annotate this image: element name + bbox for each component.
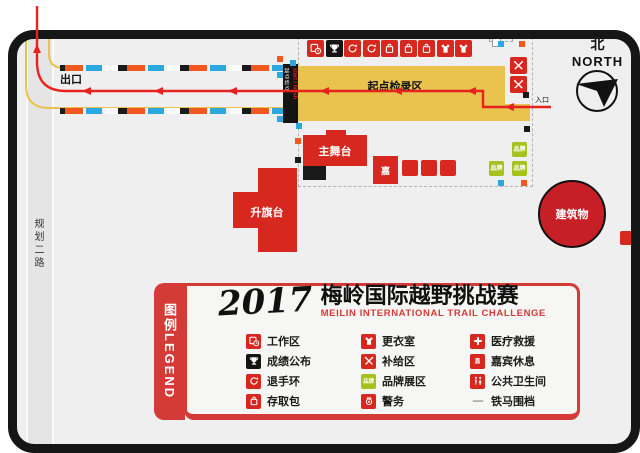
- legend-item-label: 铁马围档: [491, 393, 535, 409]
- legend-item: 品牌品牌展区: [361, 371, 470, 391]
- marker-square: [498, 180, 504, 186]
- toilet-icon: [470, 374, 485, 389]
- bracelet-icon: [344, 40, 361, 57]
- marker-square: [290, 60, 296, 66]
- bag-icon: [400, 40, 417, 57]
- north-label-en: NORTH: [560, 54, 635, 69]
- legend-item-label: 工作区: [267, 333, 300, 349]
- marker-square: [296, 123, 302, 129]
- brand-box: 品牌: [512, 161, 527, 176]
- shirt-icon: [455, 40, 472, 57]
- legend-title: 2017 梅岭国际越野挑战赛 MEILIN INTERNATIONAL TRAI…: [190, 284, 574, 319]
- checkin-area-label: 起点检录区: [330, 78, 460, 94]
- legend-item-label: 成绩公布: [267, 353, 311, 369]
- legend-title-cn: 梅岭国际越野挑战赛: [321, 284, 546, 308]
- marker-square: [519, 41, 525, 47]
- legend-column: 更衣室补给区品牌品牌展区警务: [361, 331, 470, 411]
- police-box: [440, 160, 456, 176]
- legend-tab: 图例LEGEND: [154, 283, 185, 420]
- map-icon-row: [307, 40, 472, 57]
- marker-square: [295, 138, 301, 144]
- building-circle: 建筑物: [538, 180, 606, 248]
- shirt-icon: [437, 40, 454, 57]
- entrance-label: 入口: [535, 95, 549, 105]
- barrier-row-bottom: [60, 108, 284, 114]
- marker-square: [292, 33, 298, 39]
- shirt-icon: [361, 334, 376, 349]
- legend-item: 铁马围档: [470, 391, 590, 411]
- exit-label: 出口: [60, 71, 82, 87]
- supply-box: [510, 76, 527, 93]
- legend-title-en: MEILIN INTERNATIONAL TRAIL CHALLENGE: [321, 308, 546, 319]
- north-indicator: 北 NORTH: [560, 34, 635, 69]
- main-stage: 主舞台: [303, 135, 367, 166]
- trophy-icon: [246, 354, 261, 369]
- legend-column: 医疗救援嘉嘉宾休息公共卫生间铁马围档: [470, 331, 590, 411]
- bag-icon: [246, 394, 261, 409]
- workzone-icon: [246, 334, 261, 349]
- legend-item: 退手环: [246, 371, 361, 391]
- marker-square: [295, 157, 301, 163]
- legend-column: 工作区成绩公布退手环存取包: [246, 331, 361, 411]
- marker-square: [277, 116, 283, 122]
- legend-item-label: 补给区: [382, 353, 415, 369]
- bracelet-icon: [246, 374, 261, 389]
- legend-item-label: 品牌展区: [382, 373, 426, 389]
- cutlery-icon: [512, 78, 525, 91]
- legend-item-label: 退手环: [267, 373, 300, 389]
- legend-item-label: 更衣室: [382, 333, 415, 349]
- north-label-cn: 北: [560, 34, 635, 54]
- bracelet-icon: [363, 40, 380, 57]
- legend-item-label: 警务: [382, 393, 404, 409]
- legend-item: 医疗救援: [470, 331, 590, 351]
- legend-item: 成绩公布: [246, 351, 361, 371]
- legend-item: 补给区: [361, 351, 470, 371]
- road-label: 规划二路: [30, 218, 45, 270]
- medical-box: [402, 160, 418, 176]
- medical-box: [421, 160, 437, 176]
- bag-icon: [381, 40, 398, 57]
- supply-box: [510, 57, 527, 74]
- marker-square: [521, 180, 527, 186]
- medical-icon: [470, 334, 485, 349]
- legend-tab-label: 图例LEGEND: [160, 303, 179, 399]
- guest-rest-box: 嘉: [373, 156, 398, 184]
- guest-icon: 嘉: [470, 354, 485, 369]
- legend-item: 更衣室: [361, 331, 470, 351]
- legend-item: 嘉嘉宾休息: [470, 351, 590, 371]
- legend-item: 工作区: [246, 331, 361, 351]
- checkin-area-extension: [298, 104, 530, 121]
- cutlery-icon: [361, 354, 376, 369]
- marker-square: [523, 92, 529, 98]
- brand-icon: 品牌: [361, 374, 376, 389]
- marker-square: [277, 56, 283, 62]
- legend-grid: 工作区成绩公布退手环存取包更衣室补给区品牌品牌展区警务医疗救援嘉嘉宾休息公共卫生…: [246, 331, 590, 411]
- brand-box: 品牌: [489, 161, 504, 176]
- start-finish-banner: 起点终点 start / finish: [283, 64, 298, 123]
- barrier-row-top: [60, 65, 284, 71]
- legend-title-year: 2017: [217, 282, 313, 321]
- police-icon: [361, 394, 376, 409]
- barrier-icon: [470, 394, 485, 409]
- flag-platform-label: 升旗台: [240, 204, 294, 220]
- legend-item-label: 嘉宾休息: [491, 353, 535, 369]
- workzone-icon: [307, 40, 324, 57]
- legend-item: 警务: [361, 391, 470, 411]
- legend-item: 公共卫生间: [470, 371, 590, 391]
- marker-square: [498, 41, 504, 47]
- legend-item-label: 医疗救援: [491, 333, 535, 349]
- event-map: 规划二路 起点检录区 起点终点 start / finish 主舞台 嘉 品牌 …: [0, 0, 640, 453]
- brand-box: 品牌: [512, 142, 527, 157]
- legend-item-label: 公共卫生间: [491, 373, 546, 389]
- cutlery-icon: [512, 59, 525, 72]
- legend-item-label: 存取包: [267, 393, 300, 409]
- toilet-box: [620, 231, 634, 245]
- legend-item: 存取包: [246, 391, 361, 411]
- marker-square: [524, 126, 530, 132]
- trophy-icon: [326, 40, 343, 57]
- start-finish-label-cn: 起点终点: [284, 68, 291, 123]
- marker-square: [277, 72, 283, 78]
- bag-icon: [418, 40, 435, 57]
- start-finish-label-en: start / finish: [292, 68, 298, 123]
